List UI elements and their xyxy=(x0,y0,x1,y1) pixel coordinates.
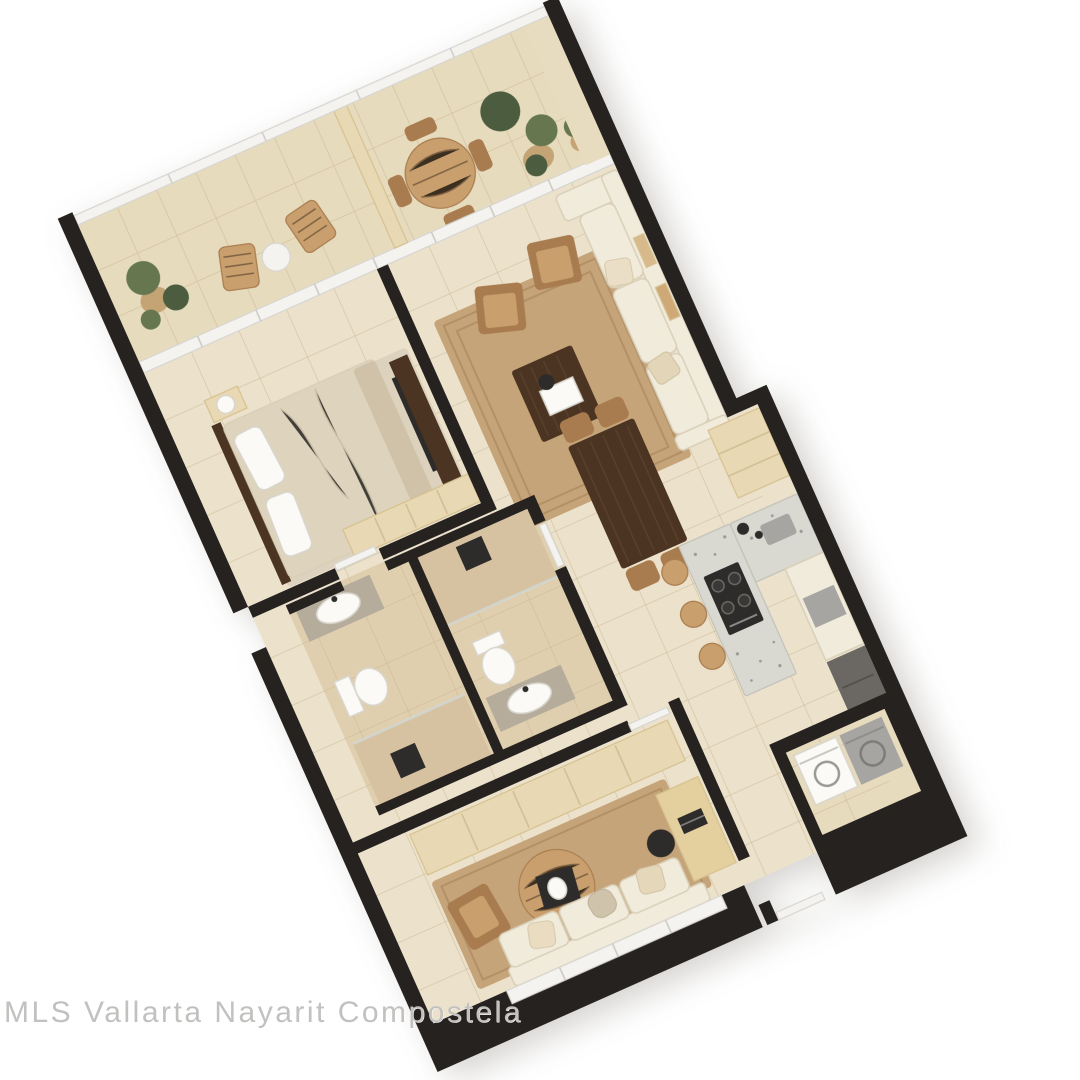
watermark-text: MLS Vallarta Nayarit Compostela xyxy=(4,996,523,1030)
lounge-chair-1 xyxy=(218,243,260,292)
apartment-3d-floor-plan xyxy=(52,0,995,1080)
armchair-2 xyxy=(526,234,583,291)
armchair-1 xyxy=(474,282,527,335)
den-pillow-1 xyxy=(527,920,556,949)
entry-door xyxy=(776,892,825,920)
sofa-pillow-1 xyxy=(604,257,634,287)
den-pillow-3 xyxy=(635,864,667,896)
floor-plan-render: MLS Vallarta Nayarit Compostela xyxy=(0,0,1080,1080)
